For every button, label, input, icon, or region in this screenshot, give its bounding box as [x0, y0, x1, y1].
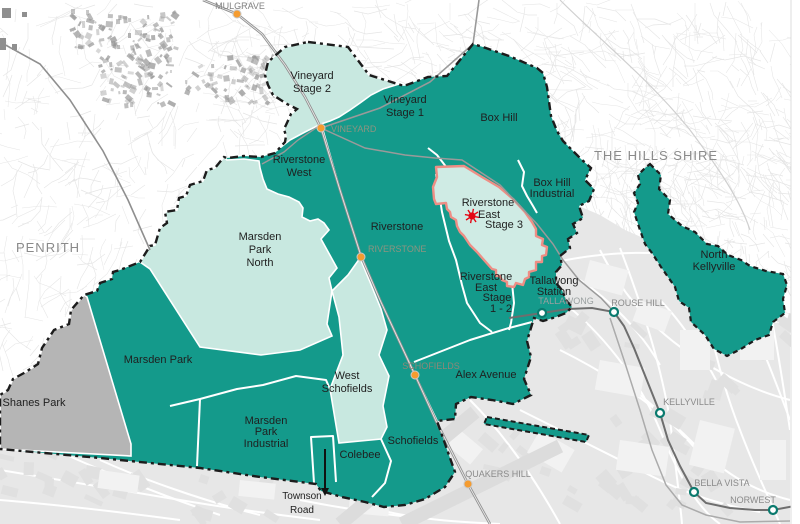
svg-text:West: West	[287, 167, 312, 179]
svg-text:Industrial: Industrial	[244, 438, 289, 450]
svg-text:Marsden Park: Marsden Park	[124, 354, 193, 366]
svg-text:Vineyard: Vineyard	[383, 94, 426, 106]
svg-text:Park: Park	[255, 426, 278, 438]
svg-text:ROUSE HILL: ROUSE HILL	[611, 298, 665, 308]
svg-text:KELLYVILLE: KELLYVILLE	[663, 397, 715, 407]
svg-text:Stage 3: Stage 3	[485, 219, 523, 231]
svg-text:Industrial: Industrial	[530, 188, 575, 200]
svg-text:THE HILLS SHIRE: THE HILLS SHIRE	[594, 148, 718, 163]
svg-text:Box Hill: Box Hill	[480, 112, 517, 124]
svg-text:North: North	[701, 249, 728, 261]
svg-text:1 - 2: 1 - 2	[490, 303, 512, 315]
svg-text:RIVERSTONE: RIVERSTONE	[368, 244, 426, 254]
svg-text:Shanes Park: Shanes Park	[3, 397, 66, 409]
svg-text:Alex Avenue: Alex Avenue	[456, 369, 517, 381]
svg-text:Colebee: Colebee	[340, 449, 381, 461]
svg-text:Park: Park	[249, 244, 272, 256]
svg-text:Schofields: Schofields	[388, 435, 439, 447]
svg-text:SCHOFIELDS: SCHOFIELDS	[402, 361, 460, 371]
svg-text:Riverstone: Riverstone	[273, 154, 326, 166]
svg-text:Townson: Townson	[282, 491, 321, 502]
svg-text:Vineyard: Vineyard	[290, 70, 333, 82]
svg-text:NORWEST: NORWEST	[730, 495, 776, 505]
svg-text:Stage 2: Stage 2	[293, 83, 331, 95]
svg-text:North: North	[247, 257, 274, 269]
svg-text:Riverstone: Riverstone	[462, 197, 515, 209]
svg-text:Riverstone: Riverstone	[371, 221, 424, 233]
svg-text:BELLA VISTA: BELLA VISTA	[694, 478, 749, 488]
svg-text:Stage 1: Stage 1	[386, 107, 424, 119]
svg-text:VINEYARD: VINEYARD	[331, 124, 377, 134]
svg-text:PENRITH: PENRITH	[16, 240, 80, 255]
svg-text:TALLAWONG: TALLAWONG	[538, 296, 594, 306]
svg-text:Road: Road	[290, 505, 314, 516]
svg-text:Schofields: Schofields	[322, 383, 373, 395]
svg-text:West: West	[335, 370, 360, 382]
svg-text:QUAKERS HILL: QUAKERS HILL	[465, 469, 531, 479]
svg-text:Kellyville: Kellyville	[693, 261, 736, 273]
svg-text:Marsden: Marsden	[239, 231, 282, 243]
svg-text:MULGRAVE: MULGRAVE	[215, 1, 265, 11]
